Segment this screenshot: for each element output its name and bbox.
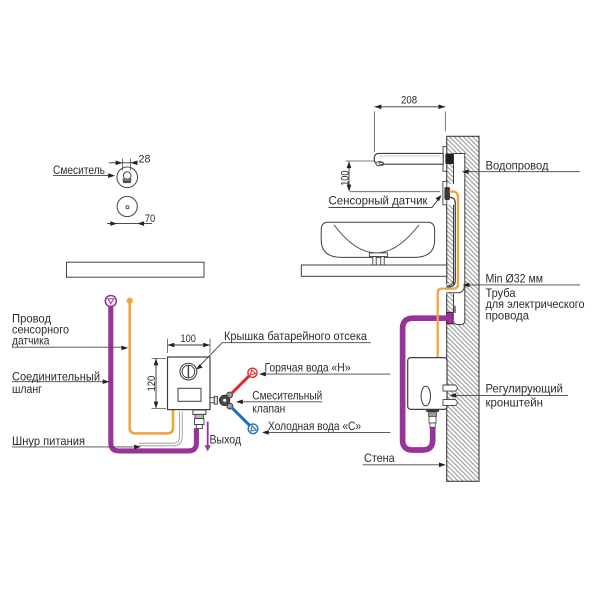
svg-text:датчика: датчика	[12, 334, 50, 348]
svg-text:Выход: Выход	[210, 432, 242, 446]
svg-text:Регулирующий: Регулирующий	[486, 382, 563, 396]
svg-text:кронштейн: кронштейн	[486, 396, 543, 410]
svg-text:Смесительный: Смесительный	[252, 388, 322, 402]
svg-text:Водопровод: Водопровод	[486, 159, 549, 173]
svg-text:120: 120	[146, 376, 158, 392]
svg-text:Смеситель: Смеситель	[53, 163, 105, 177]
svg-text:провода: провода	[486, 308, 530, 322]
svg-text:100: 100	[340, 171, 352, 186]
svg-text:Стена: Стена	[364, 451, 395, 465]
svg-text:28: 28	[139, 154, 151, 166]
svg-text:шланг: шланг	[12, 382, 43, 396]
svg-text:100: 100	[181, 333, 196, 345]
svg-text:Min Ø32 мм: Min Ø32 мм	[486, 271, 544, 285]
svg-text:70: 70	[145, 213, 156, 225]
svg-text:Горячая вода «Н»: Горячая вода «Н»	[265, 360, 351, 374]
svg-text:клапан: клапан	[252, 402, 285, 416]
svg-text:Крышка батарейного отсека: Крышка батарейного отсека	[224, 329, 367, 343]
svg-text:Холодная вода «С»: Холодная вода «С»	[268, 419, 361, 433]
svg-text:208: 208	[401, 95, 417, 107]
svg-text:Шнур питания: Шнур питания	[12, 434, 85, 448]
svg-text:Сенсорный датчик: Сенсорный датчик	[329, 194, 429, 208]
